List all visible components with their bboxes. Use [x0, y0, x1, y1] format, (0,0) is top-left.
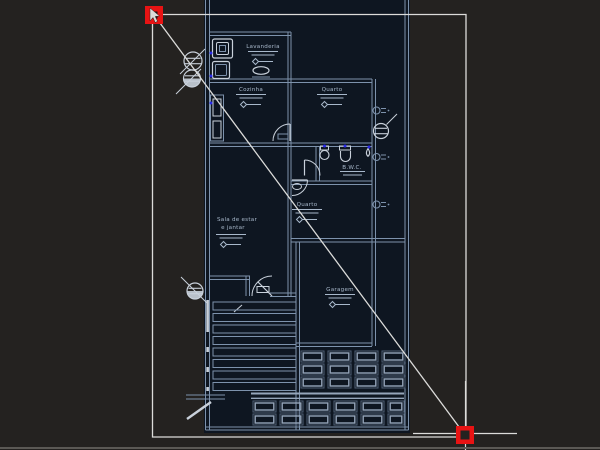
room-label-cozinha: Cozinha — [239, 87, 263, 93]
room-label-sala-line1: Sala de estar — [217, 217, 257, 223]
cad-canvas[interactable]: Lavanderia Cozinha Quarto B.W.C. Quarto … — [0, 0, 600, 450]
room-label-lavanderia: Lavanderia — [246, 44, 280, 50]
outlet-dot — [388, 204, 390, 206]
room-label-quarto-bottom: Quarto — [297, 202, 318, 208]
room-label-quarto-top: Quarto — [322, 87, 343, 93]
room-label-bwc: B.W.C. — [342, 165, 361, 171]
outlet-dot — [388, 156, 390, 158]
grip-core — [461, 431, 470, 440]
blue-fixture-dot — [368, 146, 371, 149]
blue-fixture-dot — [210, 52, 213, 55]
blue-fixture-dot — [323, 145, 326, 148]
blue-fixture-dot — [210, 75, 213, 78]
room-label-sala-line2: e jantar — [221, 225, 245, 231]
blue-fixture-dot — [344, 145, 347, 148]
room-label-garagem: Garagem — [326, 287, 354, 293]
blue-fixture-dot — [210, 102, 213, 105]
outlet-dot — [388, 110, 390, 112]
grip-bottom-right[interactable] — [456, 426, 474, 444]
